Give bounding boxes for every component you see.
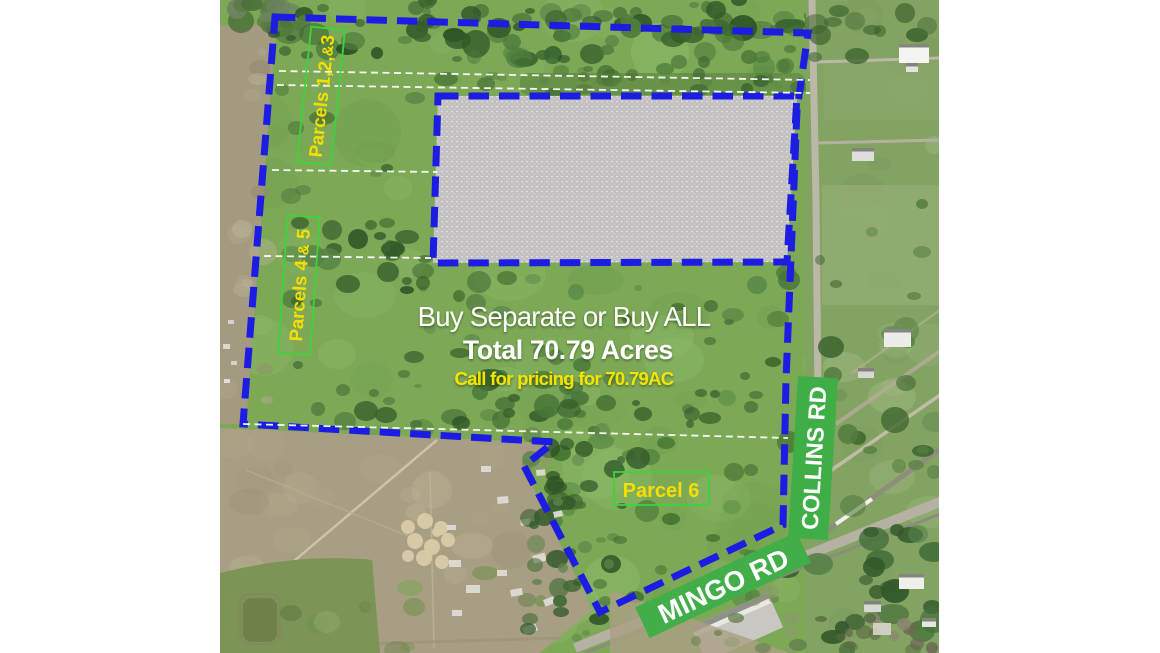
svg-text:Total 70.79 Acres: Total 70.79 Acres (463, 335, 673, 365)
svg-text:Parcel 6: Parcel 6 (623, 480, 700, 502)
svg-text:Call for pricing for 70.79AC: Call for pricing for 70.79AC (455, 368, 674, 389)
svg-text:Buy Separate or Buy ALL: Buy Separate or Buy ALL (418, 301, 711, 332)
